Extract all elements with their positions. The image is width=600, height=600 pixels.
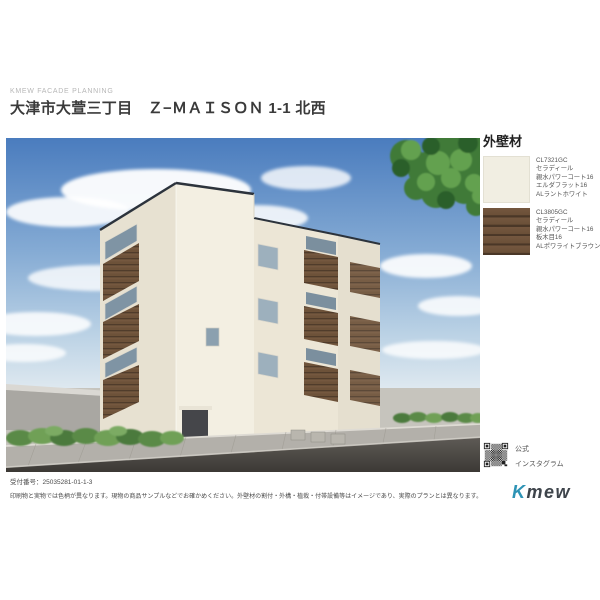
facade-rendering bbox=[6, 138, 480, 472]
material-swatch-brown bbox=[483, 208, 530, 255]
facade-rendering-svg bbox=[6, 138, 480, 472]
kmew-logo: Kmew bbox=[512, 482, 571, 503]
facade-planning-sheet: KMEW FACADE PLANNING 大津市大萱三丁目 Ｚ−ＭＡＩＳＯＮ 1… bbox=[0, 0, 600, 600]
kmew-logo-k: K bbox=[512, 482, 527, 502]
qr-code-icon bbox=[483, 442, 509, 468]
disclaimer-text: 印刷物と実物では色柄が異なります。現物の商品サンプルなどでお確かめください。外壁… bbox=[10, 491, 482, 500]
material-spec-line: 親水パワーコート16 bbox=[536, 226, 600, 234]
material-item-white: CL7321GC セラディール 親水パワーコート16 エルダフラット16 ALラ… bbox=[483, 156, 593, 203]
receipt-number: 受付番号：25035281-01-1-3 bbox=[10, 476, 92, 486]
instagram-block: 公式 インスタグラム bbox=[483, 442, 564, 469]
qr-label-line2: インスタグラム bbox=[515, 459, 564, 469]
material-spec-line: 親水パワーコート16 bbox=[536, 174, 593, 182]
material-swatch-white bbox=[483, 156, 530, 203]
material-spec-line: セラディール bbox=[536, 217, 600, 225]
materials-heading: 外壁材 bbox=[483, 131, 522, 150]
material-spec-line: セラディール bbox=[536, 165, 593, 173]
qr-label-line1: 公式 bbox=[515, 444, 564, 454]
material-item-brown: CL3805GC セラディール 親水パワーコート16 板木目16 ALポワライト… bbox=[483, 208, 600, 255]
material-spec-line: ALポワライトブラウン bbox=[536, 243, 600, 251]
material-spec-line: ALラントホワイト bbox=[536, 191, 593, 199]
material-spec-line: 板木目16 bbox=[536, 234, 600, 242]
material-spec-line: エルダフラット16 bbox=[536, 182, 593, 190]
kmew-logo-rest: mew bbox=[527, 482, 572, 502]
page-title: 大津市大萱三丁目 Ｚ−ＭＡＩＳＯＮ 1-1 北西 bbox=[10, 97, 326, 118]
header-eyebrow: KMEW FACADE PLANNING bbox=[10, 88, 113, 95]
